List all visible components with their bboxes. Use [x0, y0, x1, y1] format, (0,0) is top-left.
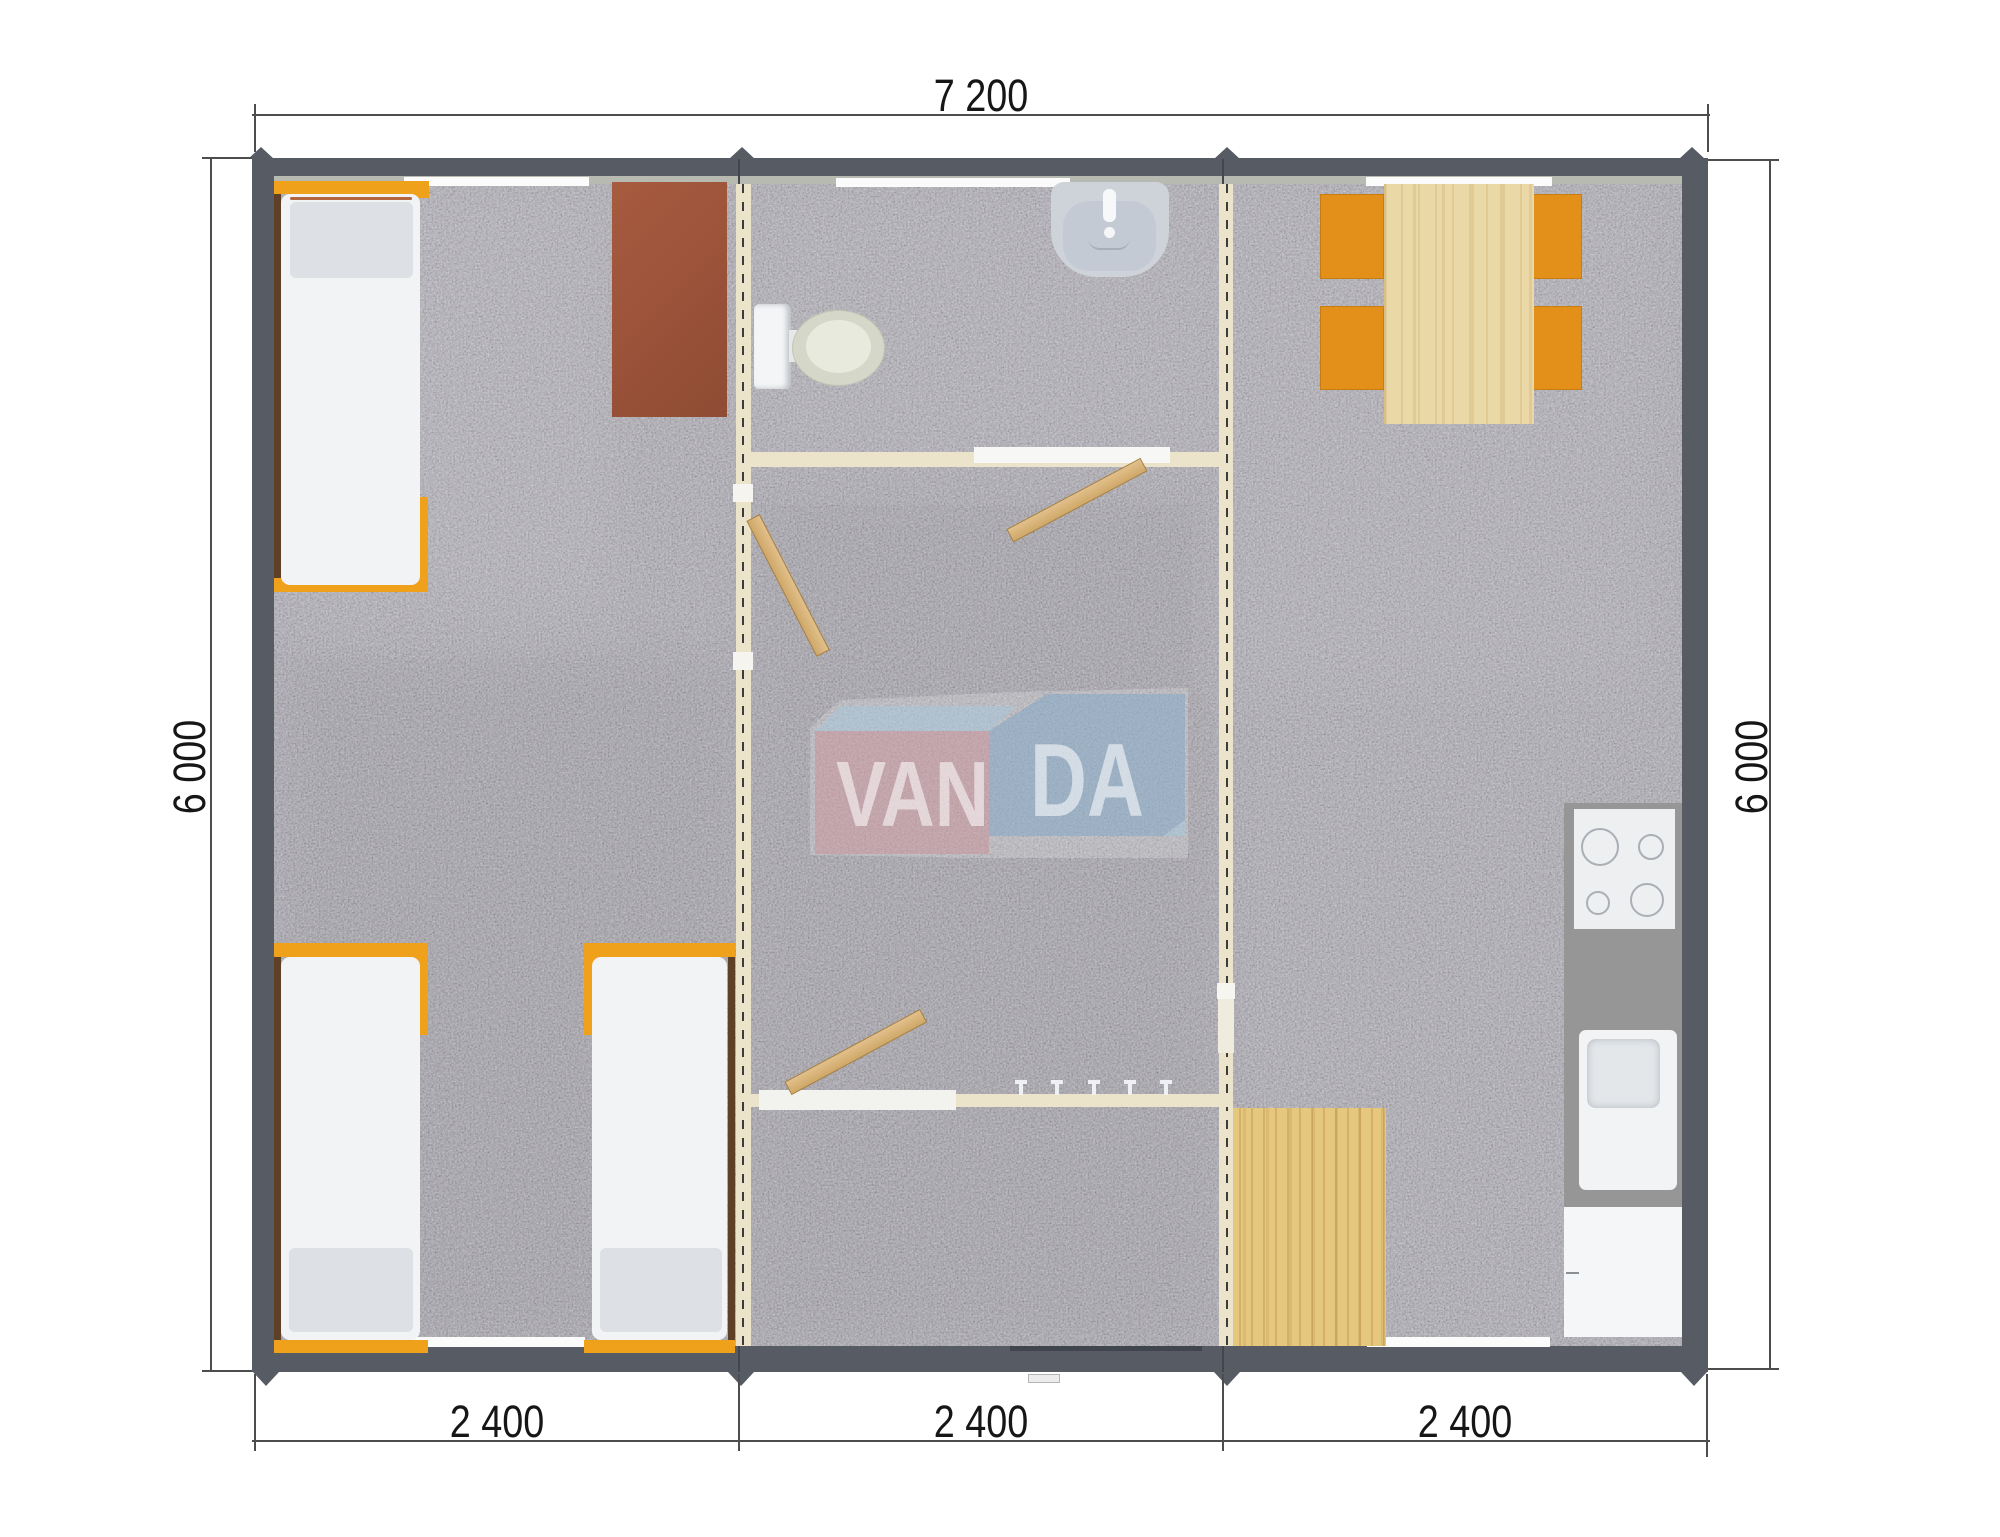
svg-text:VAN: VAN: [836, 742, 989, 846]
svg-text:DA: DA: [1030, 723, 1144, 839]
